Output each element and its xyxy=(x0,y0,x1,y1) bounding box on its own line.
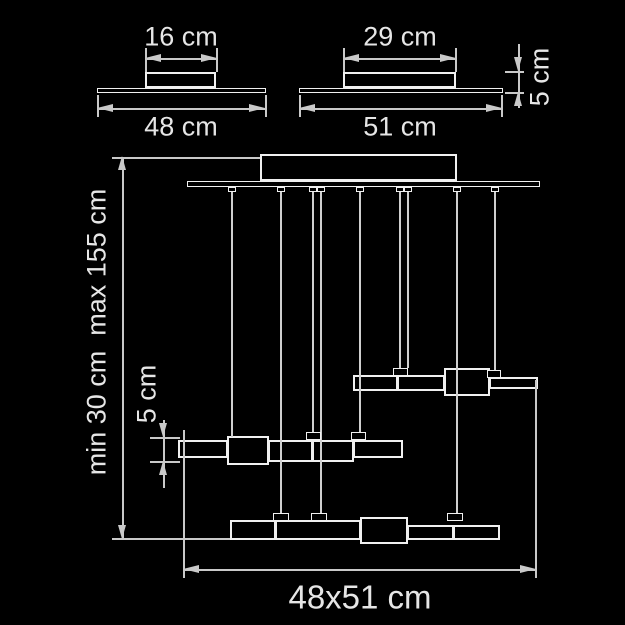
light-bar-box xyxy=(227,436,269,465)
wire-cap xyxy=(487,370,501,378)
arrowhead-up xyxy=(118,156,126,170)
extension-line xyxy=(265,95,267,117)
wire-cap xyxy=(273,513,289,521)
small-unit-baseplate xyxy=(97,88,266,93)
extension-line xyxy=(505,71,524,73)
arrowhead-right xyxy=(249,104,265,112)
dimension-line xyxy=(97,108,265,110)
dimension-line xyxy=(183,569,536,571)
light-bar-segment xyxy=(407,525,454,540)
light-bar-segment xyxy=(397,375,445,391)
light-bar-segment xyxy=(268,440,313,462)
small-unit-top-width-label: 16 cm xyxy=(144,24,218,51)
arrowhead-left xyxy=(97,104,113,112)
suspension-wire xyxy=(280,192,282,514)
suspension-wire xyxy=(399,192,401,368)
extension-line xyxy=(112,538,230,540)
assembly-suspension-range-label: min 30 cm max 155 cm xyxy=(84,189,111,476)
arrowhead-right xyxy=(520,565,536,573)
arrowhead-up xyxy=(514,92,522,106)
arrowhead-down xyxy=(159,423,167,437)
suspension-wire xyxy=(320,192,322,514)
wire-cap xyxy=(351,432,366,440)
arrowhead-right xyxy=(440,54,456,62)
arrowhead-down xyxy=(118,525,126,539)
light-bar-segment xyxy=(275,520,361,540)
wire-cap xyxy=(393,368,408,376)
dimension-drawing: 16 cm 48 cm 29 cm 51 cm 5 cm xyxy=(0,0,625,625)
arrowhead-left xyxy=(343,54,359,62)
assembly-element-height-label: 5 cm xyxy=(134,365,161,424)
light-bar-box xyxy=(444,368,490,396)
large-unit-canopy xyxy=(343,72,456,88)
arrowhead-down xyxy=(514,57,522,71)
assembly-footprint-label: 48x51 cm xyxy=(288,581,431,614)
extension-line xyxy=(112,157,260,159)
arrowhead-left xyxy=(145,54,161,62)
wire-cap xyxy=(447,513,463,521)
dimension-line xyxy=(122,157,124,538)
suspension-wire xyxy=(407,192,409,368)
small-unit-canopy xyxy=(145,72,216,88)
arrowhead-left xyxy=(183,565,199,573)
large-unit-baseplate xyxy=(299,88,503,93)
light-bar-segment xyxy=(353,440,403,458)
arrowhead-right xyxy=(201,54,217,62)
wire-cap xyxy=(311,513,327,521)
arrowhead-up xyxy=(159,461,167,475)
light-bar-box xyxy=(360,517,408,544)
wire-cap xyxy=(306,432,321,440)
light-bar-segment xyxy=(312,440,354,462)
suspension-wire xyxy=(494,192,496,370)
arrowhead-left xyxy=(299,104,315,112)
light-bar-segment xyxy=(178,440,228,458)
suspension-wire xyxy=(231,192,233,437)
suspension-wire xyxy=(456,192,458,514)
light-bar-segment xyxy=(489,377,538,389)
suspension-wire xyxy=(312,192,314,433)
assembly-canopy xyxy=(260,154,457,181)
large-unit-top-width-label: 29 cm xyxy=(363,24,437,51)
light-bar-segment xyxy=(453,525,500,540)
dimension-line xyxy=(299,108,502,110)
small-unit-base-width-label: 48 cm xyxy=(144,114,218,141)
extension-line xyxy=(535,380,537,578)
large-unit-height-label: 5 cm xyxy=(527,48,554,107)
light-bar-segment xyxy=(230,520,276,540)
large-unit-base-width-label: 51 cm xyxy=(363,114,437,141)
arrowhead-right xyxy=(486,104,502,112)
extension-line xyxy=(150,437,180,439)
extension-line xyxy=(183,430,185,578)
suspension-wire xyxy=(359,192,361,433)
